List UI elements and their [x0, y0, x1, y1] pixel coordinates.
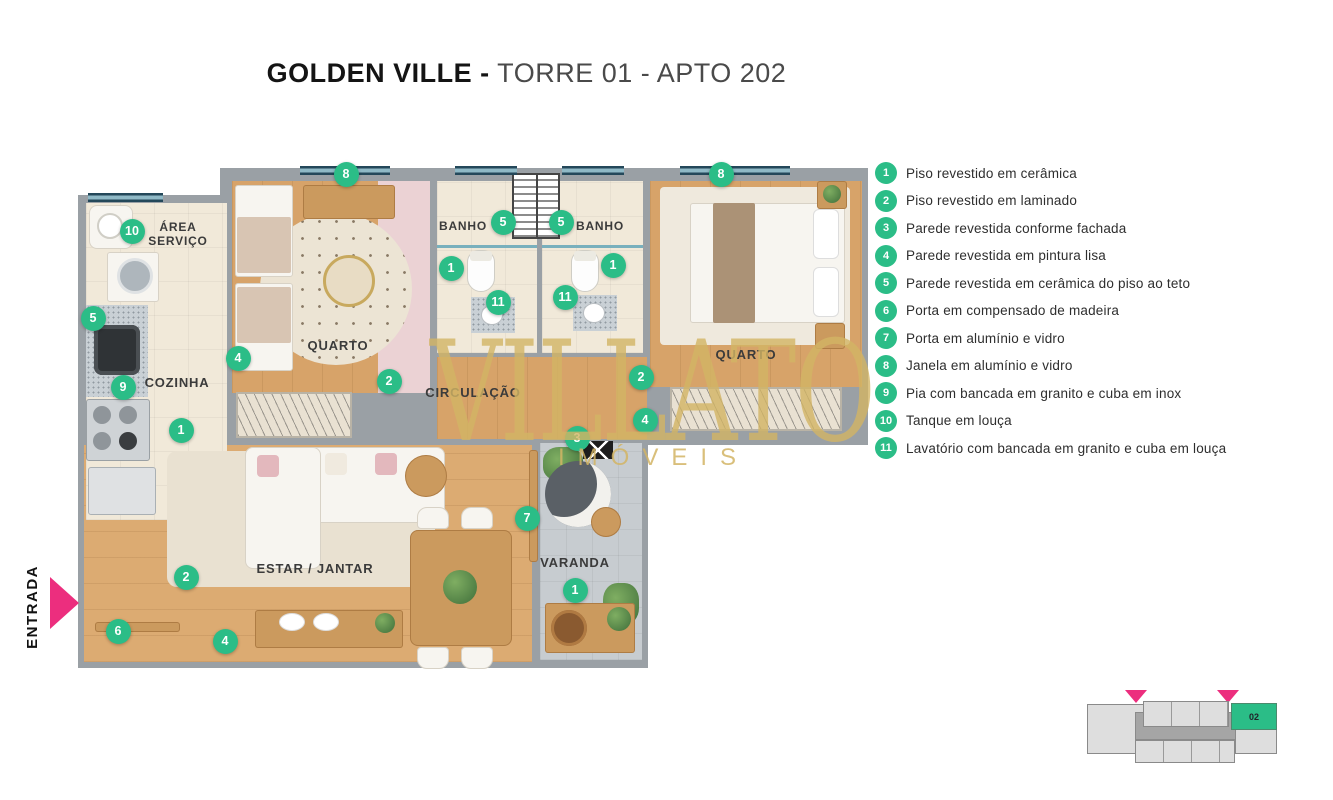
legend-label: Janela em alumínio e vidro	[906, 358, 1073, 373]
laundry-tank-basin	[97, 213, 123, 239]
minimap-bottom-units	[1135, 740, 1235, 763]
quarto1-bed-b-blanket	[237, 287, 291, 343]
sideboard-decor	[279, 613, 305, 631]
legend-item-11: 11Lavatório com bancada em granito e cub…	[875, 437, 1226, 459]
legend-item-5: 5Parede revestida em cerâmica do piso ao…	[875, 272, 1226, 294]
window-banho2	[562, 166, 624, 175]
label-quarto1: QUARTO	[288, 338, 388, 353]
plan-marker-1: 1	[601, 253, 626, 278]
window-banho1	[455, 166, 517, 175]
plan-marker-10: 10	[120, 219, 145, 244]
label-estar-jantar: ESTAR / JANTAR	[240, 561, 390, 576]
legend-number-badge: 6	[875, 300, 897, 322]
legend-item-2: 2Piso revestido em laminado	[875, 190, 1226, 212]
quarto1-round-table	[323, 255, 375, 307]
legend-item-3: 3Parede revestida conforme fachada	[875, 217, 1226, 239]
banho1-toilet	[467, 250, 495, 292]
stove-burner	[119, 432, 137, 450]
banho2-sink	[583, 303, 605, 323]
food-tray	[551, 610, 587, 646]
legend-number-badge: 10	[875, 410, 897, 432]
quarto1-bed-a-blanket	[237, 217, 291, 273]
legend-label: Lavatório com bancada em granito e cuba …	[906, 441, 1226, 456]
finish-legend: 1Piso revestido em cerâmica2Piso revesti…	[875, 162, 1226, 459]
legend-number-badge: 3	[875, 217, 897, 239]
legend-item-7: 7Porta em alumínio e vidro	[875, 327, 1226, 349]
legend-label: Porta em alumínio e vidro	[906, 331, 1065, 346]
legend-number-badge: 2	[875, 190, 897, 212]
tower-apartment: TORRE 01 - APTO 202	[490, 58, 787, 88]
sofa-cushion	[375, 453, 397, 475]
plan-marker-3: 3	[565, 426, 590, 451]
banho2-shower-glass	[542, 245, 643, 248]
quarto2-closet	[670, 387, 842, 431]
floor-plan: ÁREA SERVIÇO COZINHA QUARTO BANHO BANHO …	[75, 155, 870, 670]
dining-chair	[461, 507, 493, 529]
dining-table-plant	[443, 570, 477, 604]
plan-marker-2: 2	[629, 365, 654, 390]
plan-marker-11: 11	[486, 290, 511, 315]
dining-chair	[417, 507, 449, 529]
legend-item-6: 6Porta em compensado de madeira	[875, 300, 1226, 322]
label-quarto2: QUARTO	[696, 347, 796, 362]
plan-marker-2: 2	[377, 369, 402, 394]
legend-number-badge: 9	[875, 382, 897, 404]
legend-item-8: 8Janela em alumínio e vidro	[875, 355, 1226, 377]
legend-item-4: 4Parede revestida em pintura lisa	[875, 245, 1226, 267]
varanda-table	[591, 507, 621, 537]
legend-item-1: 1Piso revestido em cerâmica	[875, 162, 1226, 184]
minimap-top-units	[1143, 701, 1229, 727]
washing-machine-door	[117, 258, 153, 294]
stove-burner	[93, 406, 111, 424]
quarto2-plant	[823, 185, 841, 203]
plan-marker-4: 4	[213, 629, 238, 654]
quarto1-desk	[303, 185, 395, 219]
plan-marker-4: 4	[633, 408, 658, 433]
dining-chair	[417, 647, 449, 669]
plan-marker-11: 11	[553, 285, 578, 310]
plan-marker-8: 8	[334, 162, 359, 187]
label-cozinha: COZINHA	[127, 375, 227, 390]
plan-marker-9: 9	[111, 375, 136, 400]
legend-label: Tanque em louça	[906, 413, 1012, 428]
plan-marker-5: 5	[549, 210, 574, 235]
quarto1-closet	[236, 392, 352, 438]
deck-plant	[607, 607, 631, 631]
legend-label: Parede revestida em pintura lisa	[906, 248, 1106, 263]
sideboard-plant	[375, 613, 395, 633]
sofa-cushion	[257, 455, 279, 477]
kitchen-sink	[94, 325, 140, 375]
plan-marker-4: 4	[226, 346, 251, 371]
entrance-label: ENTRADA	[24, 565, 41, 649]
page-title: GOLDEN VILLE - TORRE 01 - APTO 202	[0, 58, 1053, 89]
sideboard-decor	[313, 613, 339, 631]
fridge	[88, 467, 156, 515]
project-name: GOLDEN VILLE -	[267, 58, 490, 88]
banho1-shower-glass	[437, 245, 537, 248]
legend-number-badge: 1	[875, 162, 897, 184]
plan-marker-2: 2	[174, 565, 199, 590]
stove-burner	[119, 406, 137, 424]
sofa-cushion	[325, 453, 347, 475]
quarto2-pillows	[813, 209, 839, 259]
quarto2-bed-runner	[713, 203, 755, 323]
side-table	[405, 455, 447, 497]
legend-label: Pia com bancada em granito e cuba em ino…	[906, 386, 1181, 401]
quarto2-nightstand-bottom	[815, 323, 845, 349]
plan-marker-1: 1	[563, 578, 588, 603]
legend-item-9: 9Pia com bancada em granito e cuba em in…	[875, 382, 1226, 404]
window-quarto2	[680, 166, 790, 175]
plan-marker-5: 5	[491, 210, 516, 235]
dining-chair	[461, 647, 493, 669]
legend-number-badge: 5	[875, 272, 897, 294]
legend-number-badge: 11	[875, 437, 897, 459]
plan-marker-7: 7	[515, 506, 540, 531]
plan-marker-1: 1	[169, 418, 194, 443]
legend-item-10: 10Tanque em louça	[875, 410, 1226, 432]
minimap-highlighted-unit: 02	[1231, 703, 1277, 730]
building-minimap: 02	[1085, 688, 1285, 773]
page: GOLDEN VILLE - TORRE 01 - APTO 202	[0, 0, 1333, 800]
quarto2-pillows	[813, 267, 839, 317]
legend-number-badge: 8	[875, 355, 897, 377]
plan-marker-5: 5	[81, 306, 106, 331]
stove-burner	[93, 432, 111, 450]
legend-label: Porta em compensado de madeira	[906, 303, 1119, 318]
label-circulacao: CIRCULAÇÃO	[413, 385, 533, 400]
legend-label: Parede revestida conforme fachada	[906, 221, 1126, 236]
label-varanda: VARANDA	[525, 555, 625, 570]
plan-marker-6: 6	[106, 619, 131, 644]
legend-label: Parede revestida em cerâmica do piso ao …	[906, 276, 1190, 291]
window-area-servico	[88, 193, 163, 202]
legend-label: Piso revestido em laminado	[906, 193, 1077, 208]
plan-marker-1: 1	[439, 256, 464, 281]
banho2-toilet	[571, 250, 599, 292]
plan-marker-8: 8	[709, 162, 734, 187]
legend-label: Piso revestido em cerâmica	[906, 166, 1077, 181]
entrance-arrow-icon	[50, 577, 79, 629]
legend-number-badge: 7	[875, 327, 897, 349]
legend-number-badge: 4	[875, 245, 897, 267]
